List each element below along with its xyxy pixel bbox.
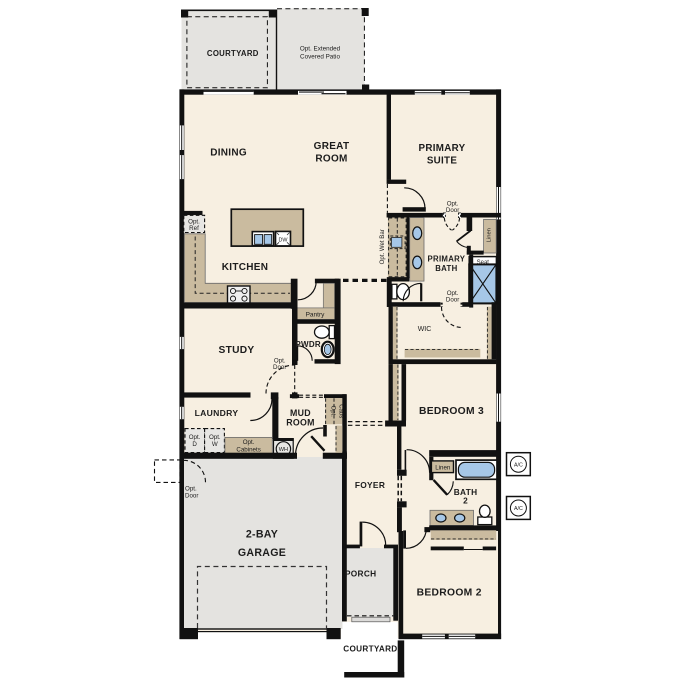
svg-text:Covered Patio: Covered Patio xyxy=(300,54,340,61)
svg-text:Ref: Ref xyxy=(189,225,199,232)
svg-text:Linen: Linen xyxy=(486,228,492,242)
svg-text:Opt.: Opt. xyxy=(243,439,255,446)
svg-text:Opt.: Opt. xyxy=(185,486,197,493)
svg-text:2: 2 xyxy=(463,496,468,506)
svg-text:Pantry: Pantry xyxy=(306,311,326,318)
svg-text:W: W xyxy=(212,441,218,448)
svg-text:Door: Door xyxy=(185,493,198,500)
svg-text:Door: Door xyxy=(273,364,286,371)
svg-text:GARAGE: GARAGE xyxy=(238,547,286,559)
svg-text:ROOM: ROOM xyxy=(286,417,315,427)
svg-text:D: D xyxy=(192,441,197,448)
svg-text:LAUNDRY: LAUNDRY xyxy=(195,408,239,418)
svg-text:DINING: DINING xyxy=(210,147,247,158)
svg-text:ROOM: ROOM xyxy=(315,154,347,165)
svg-text:BATH: BATH xyxy=(435,264,457,273)
svg-text:STUDY: STUDY xyxy=(218,345,254,356)
svg-text:Door: Door xyxy=(446,207,459,214)
svg-text:PRIMARY: PRIMARY xyxy=(428,255,466,264)
svg-text:Door: Door xyxy=(446,296,459,303)
svg-text:BEDROOM 3: BEDROOM 3 xyxy=(419,406,484,417)
svg-text:PRIMARY: PRIMARY xyxy=(419,143,466,154)
svg-text:PWDR: PWDR xyxy=(295,340,321,349)
svg-text:SUITE: SUITE xyxy=(427,155,458,166)
svg-text:A/C: A/C xyxy=(514,506,523,512)
svg-text:A/C: A/C xyxy=(514,462,523,468)
svg-text:BEDROOM 2: BEDROOM 2 xyxy=(417,588,482,599)
svg-text:WH: WH xyxy=(279,447,288,453)
svg-text:Opt.: Opt. xyxy=(330,406,336,418)
svg-text:Linen: Linen xyxy=(435,465,451,472)
svg-text:COURTYARD: COURTYARD xyxy=(343,644,397,653)
svg-text:PORCH: PORCH xyxy=(345,569,376,579)
svg-text:Opt.: Opt. xyxy=(209,434,221,441)
svg-text:Opt. Wet Bar: Opt. Wet Bar xyxy=(379,229,386,264)
svg-text:GREAT: GREAT xyxy=(314,141,350,152)
svg-text:FOYER: FOYER xyxy=(355,480,385,490)
svg-text:2-BAY: 2-BAY xyxy=(246,528,278,540)
svg-text:WIC: WIC xyxy=(418,326,432,333)
svg-text:Opt. Extended: Opt. Extended xyxy=(300,46,341,53)
svg-text:KITCHEN: KITCHEN xyxy=(222,262,269,273)
svg-text:Cabinets: Cabinets xyxy=(236,446,260,453)
svg-text:Opt.: Opt. xyxy=(189,434,201,441)
svg-text:COURTYARD: COURTYARD xyxy=(207,49,259,58)
